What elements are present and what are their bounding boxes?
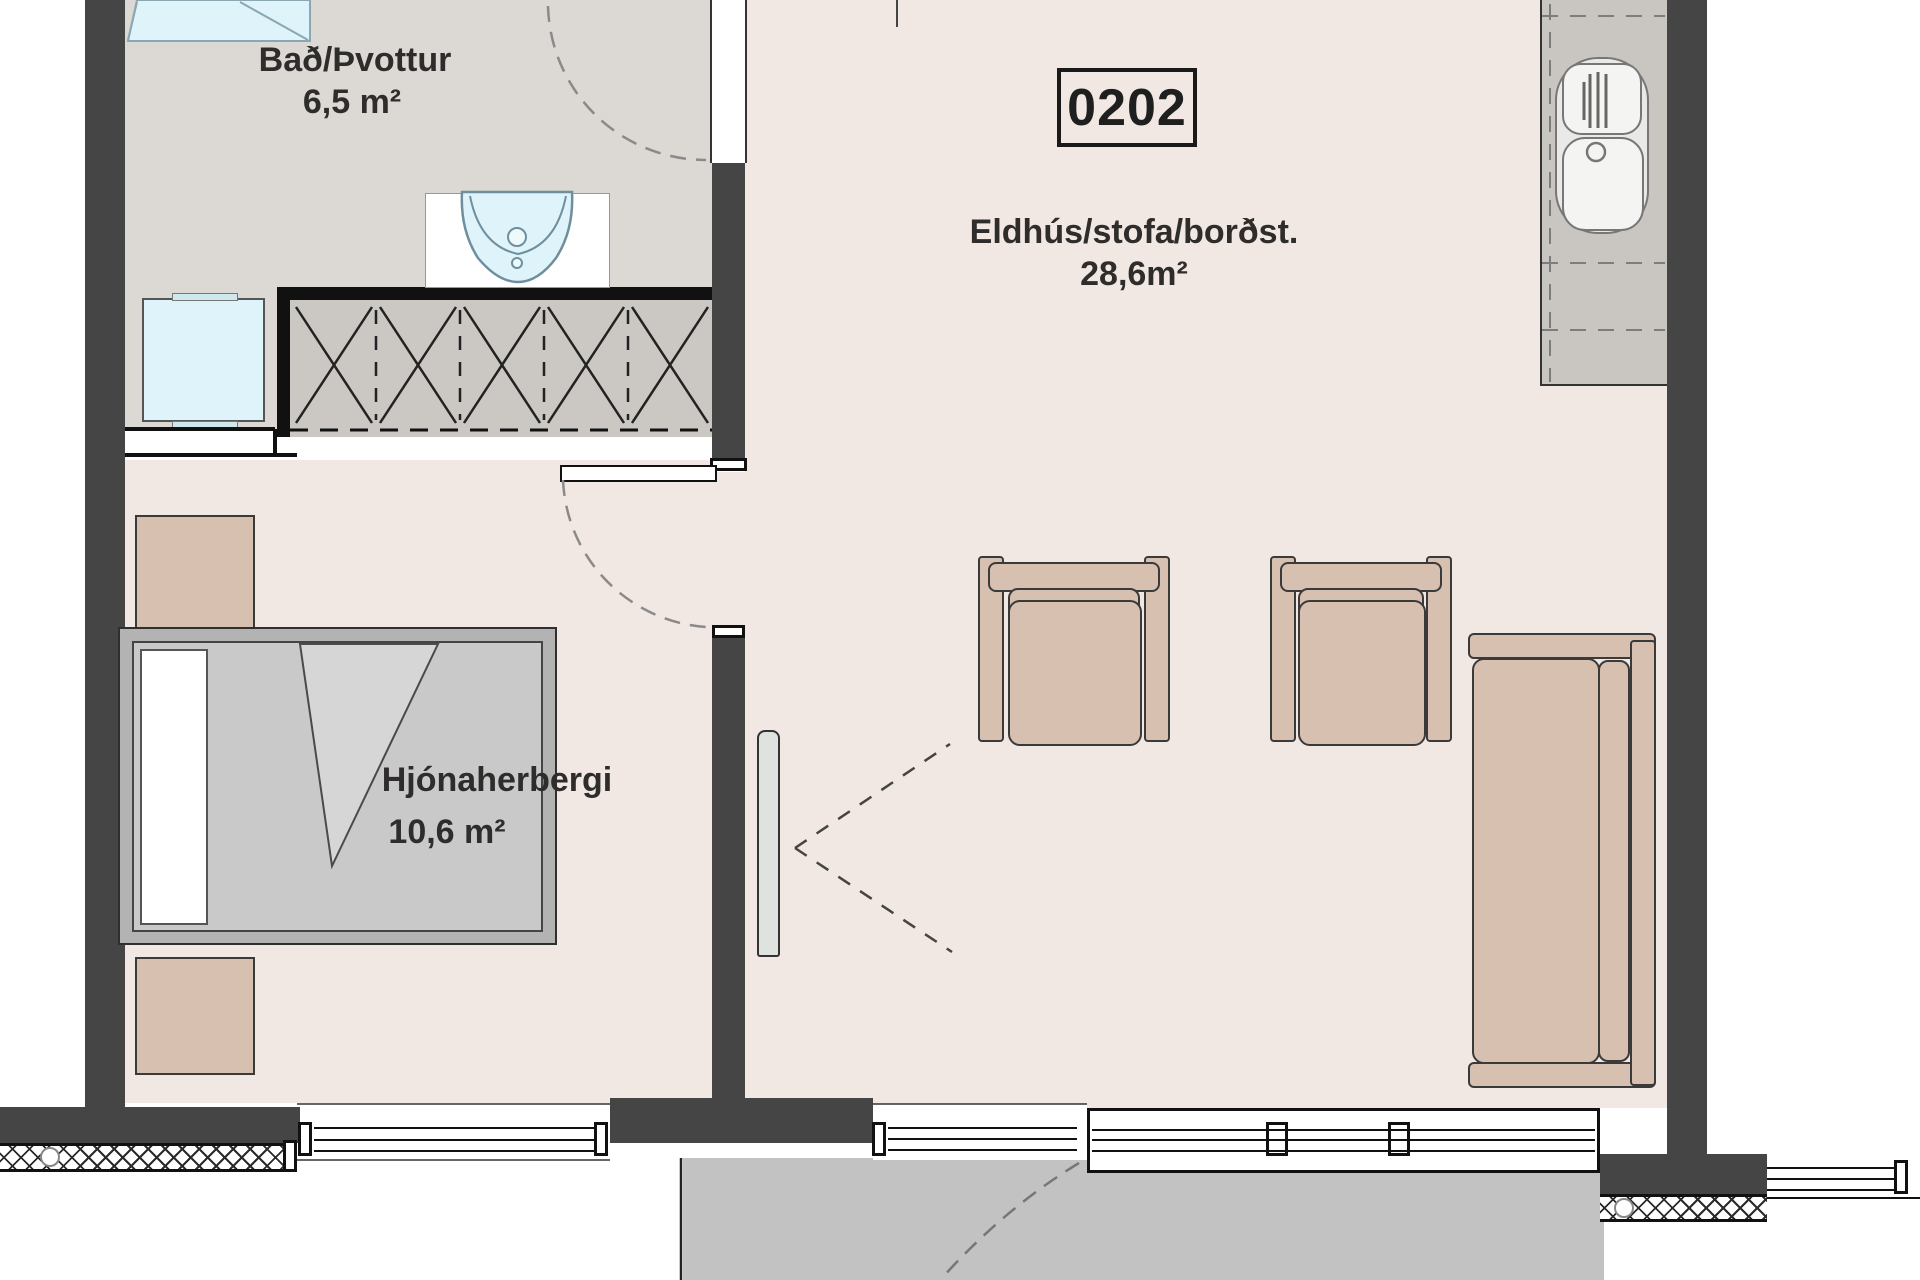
window-cap [298, 1122, 312, 1156]
sofa-armrest [1468, 633, 1656, 659]
wall-bottom-left [0, 1107, 300, 1143]
bed-pillow [140, 649, 208, 925]
bathroom-area: 6,5 m² [152, 82, 552, 122]
insulation-hatch-left [0, 1143, 283, 1172]
wall-left-exterior [85, 0, 125, 1143]
window-mullion [1266, 1122, 1288, 1156]
unit-number: 0202 [1067, 78, 1187, 138]
open-door-leaf [757, 730, 780, 957]
window-cap [872, 1122, 886, 1156]
sofa-armrest [1468, 1062, 1656, 1088]
washing-machine [142, 298, 265, 422]
wall-partition-upper [712, 163, 745, 458]
sofa-back [1630, 640, 1656, 1086]
armchair-seat [1008, 600, 1142, 746]
insulation-hatch-right [1600, 1194, 1767, 1222]
door-frame-cap [712, 625, 745, 638]
bathroom-label: Bað/Þvottur [155, 40, 555, 80]
kitchen-counter [1540, 0, 1667, 386]
sofa-seat [1472, 658, 1600, 1064]
nightstand [135, 957, 255, 1075]
window-cap [283, 1140, 297, 1172]
living-room-window [1087, 1108, 1600, 1173]
bathroom-wall-lines [125, 429, 297, 455]
bedroom-label: Hjónaherbergi [297, 760, 697, 800]
wall-right-exterior [1667, 0, 1707, 1154]
bedroom-window [297, 1104, 610, 1162]
bathroom-door-opening [712, 0, 745, 163]
wardrobe [277, 287, 712, 437]
floor-plan: Bað/Þvottur 6,5 m² 0202 Eldhús/stofa/bor… [0, 0, 1920, 1280]
balcony [683, 1158, 1604, 1280]
window-cap [594, 1122, 608, 1156]
window-cap [1894, 1160, 1908, 1194]
armchair-seat [1298, 600, 1426, 746]
wall-partition-lower [712, 638, 745, 1098]
washing-machine-tab [172, 421, 238, 429]
bedroom-door-leaf [560, 465, 717, 482]
wall-bottom-middle [610, 1098, 873, 1143]
wall-bottom-right-corner [1600, 1154, 1767, 1194]
sofa-back-cushion [1598, 660, 1630, 1062]
washing-machine-tab [172, 293, 238, 301]
window-mullion [1388, 1122, 1410, 1156]
unit-number-badge: 0202 [1057, 68, 1197, 147]
kitchen-living-area: 28,6m² [834, 254, 1434, 294]
kitchen-living-label: Eldhús/stofa/borðst. [834, 212, 1434, 252]
washbasin-counter [425, 193, 610, 288]
balcony-door [873, 1104, 1087, 1160]
floor-door-opening [712, 472, 745, 625]
bedroom-area: 10,6 m² [247, 812, 647, 852]
nightstand [135, 515, 255, 633]
